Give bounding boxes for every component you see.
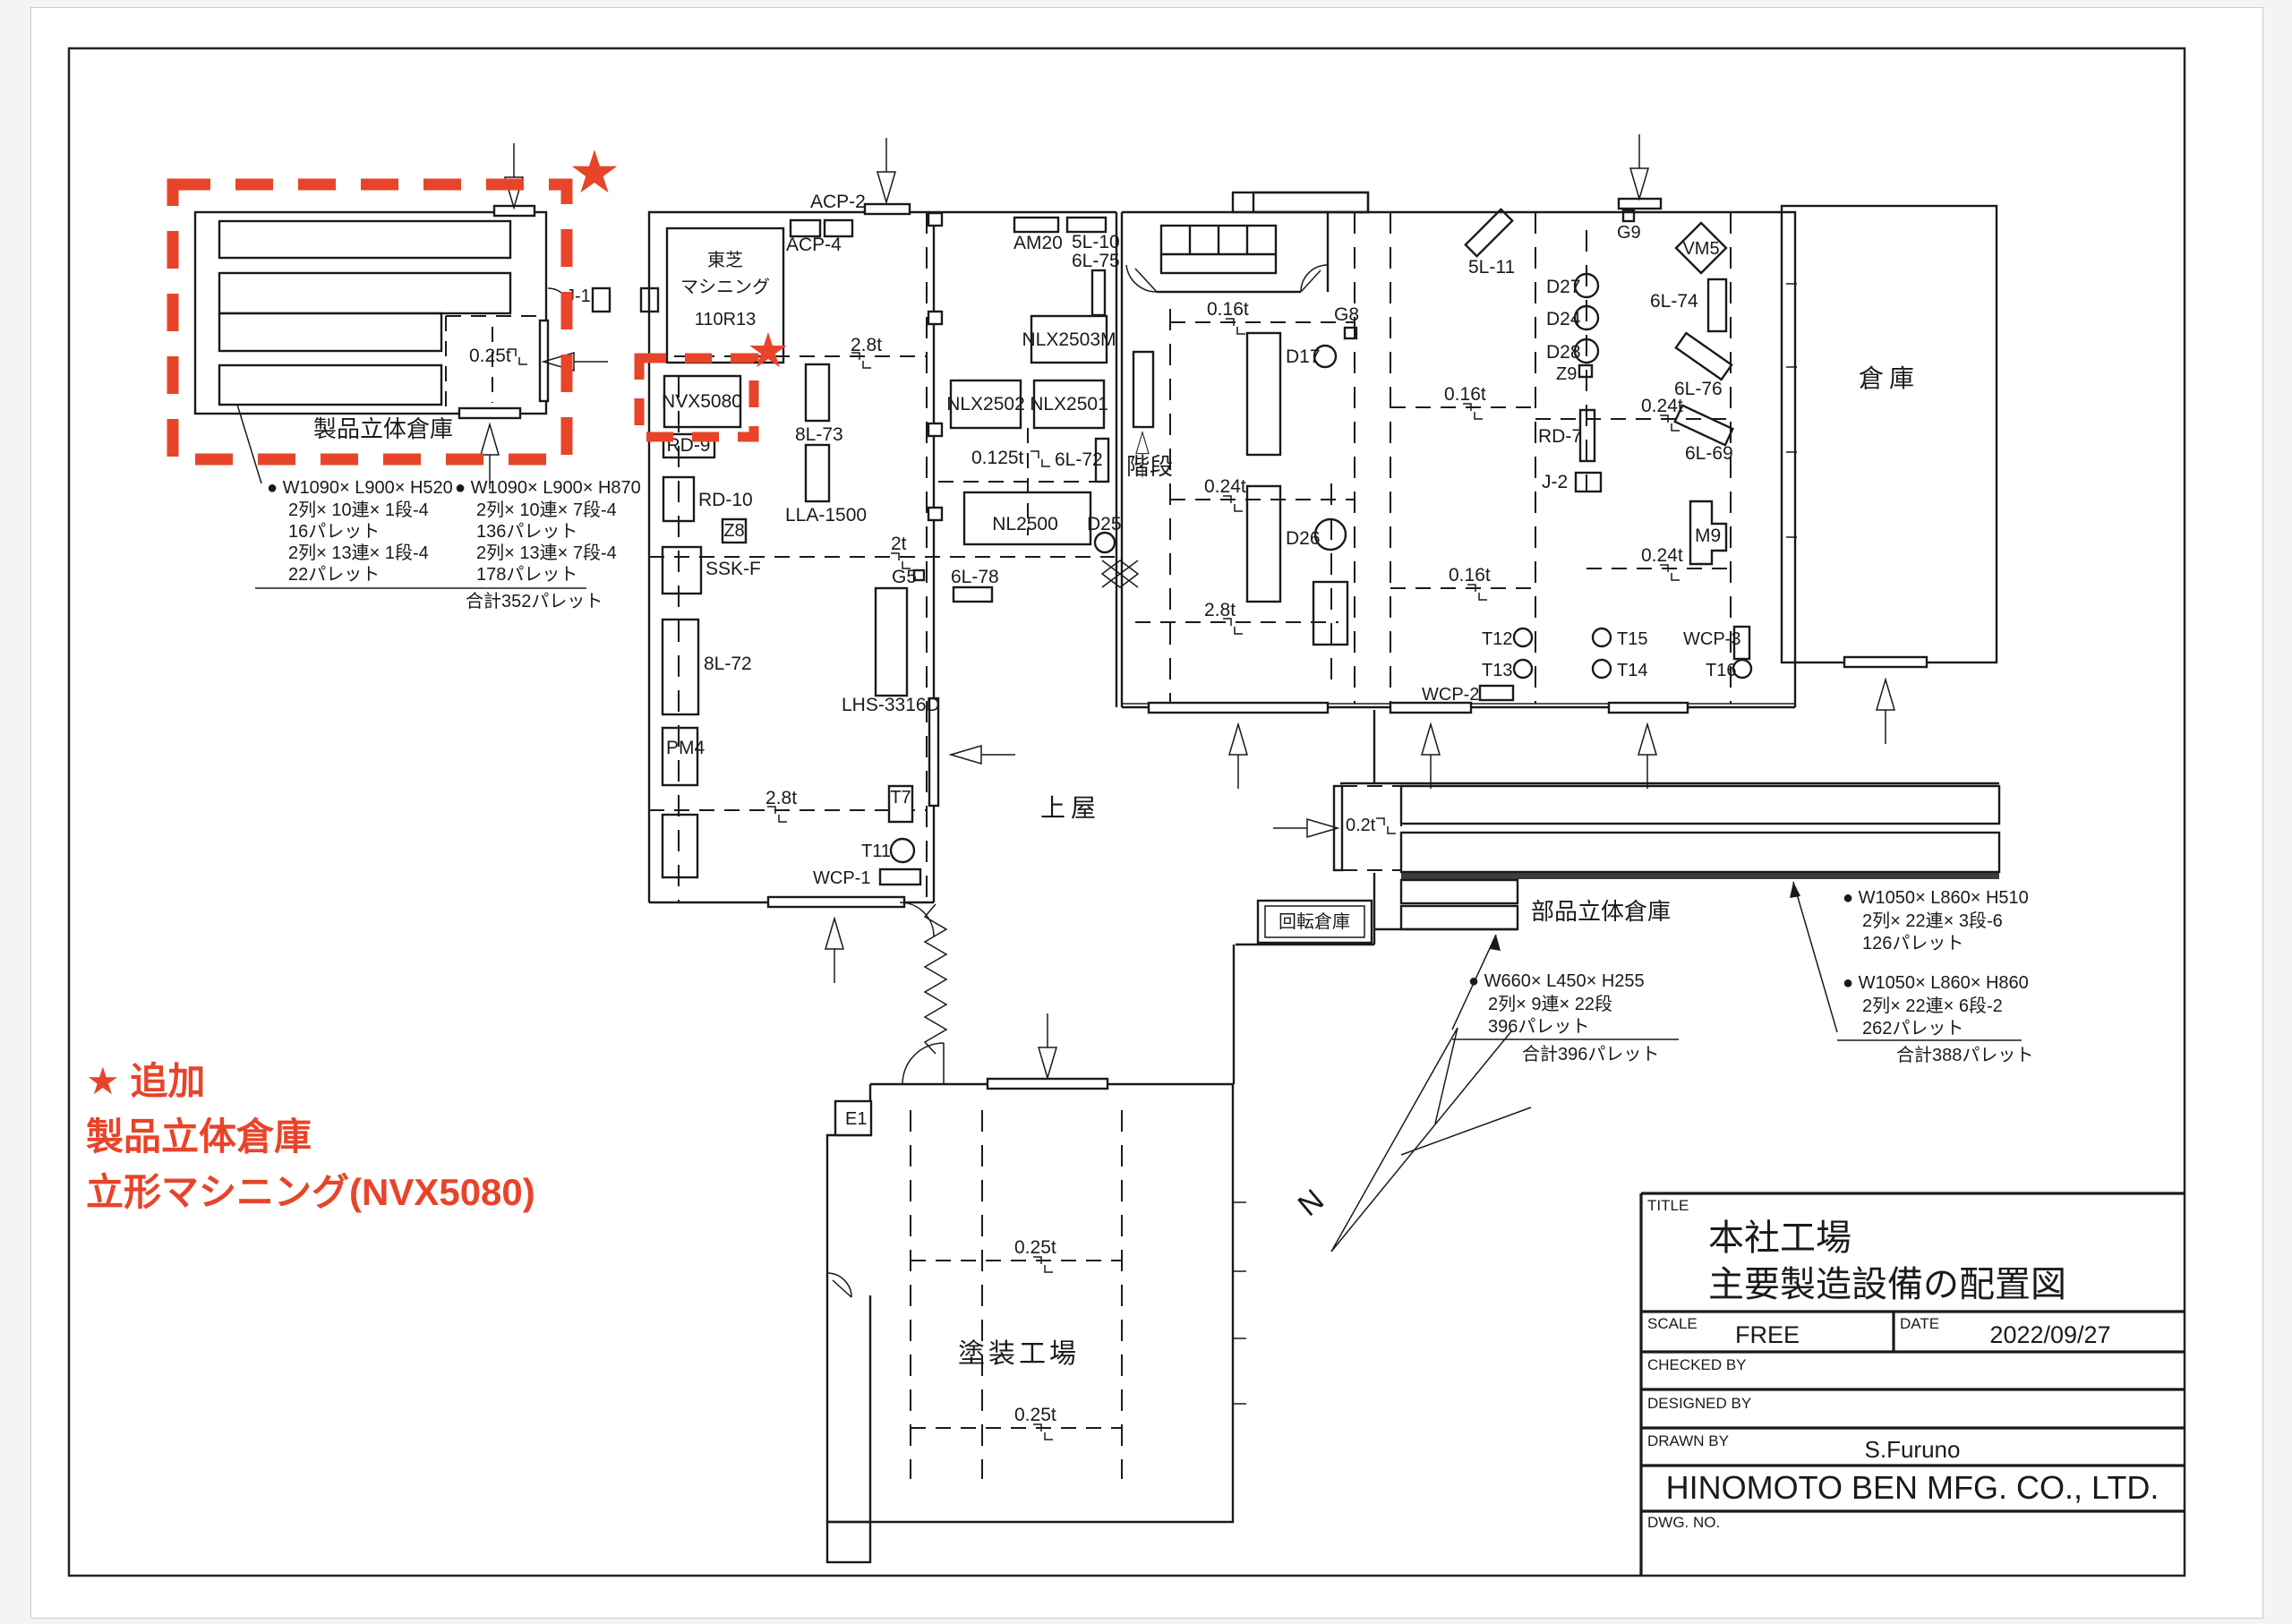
svg-text:2列× 22連× 3段-6: 2列× 22連× 3段-6 bbox=[1862, 910, 2003, 931]
south-door bbox=[768, 897, 904, 907]
svg-text:WCP-3: WCP-3 bbox=[1683, 629, 1740, 649]
svg-text:126パレット: 126パレット bbox=[1862, 934, 1963, 953]
canopy-label: 上屋 bbox=[1040, 794, 1101, 822]
svg-text:T11: T11 bbox=[861, 842, 891, 861]
red-note-line1: ★ 追加 bbox=[86, 1060, 205, 1102]
svg-text:22パレット: 22パレット bbox=[288, 565, 380, 585]
svg-text:J-2: J-2 bbox=[1542, 472, 1568, 492]
svg-text:VM5: VM5 bbox=[1682, 239, 1719, 259]
svg-text:16パレット: 16パレット bbox=[288, 522, 380, 542]
svg-text:0.16t: 0.16t bbox=[1207, 299, 1249, 320]
svg-text:Z8: Z8 bbox=[723, 521, 744, 541]
svg-text:LHS-3316D: LHS-3316D bbox=[842, 695, 940, 715]
svg-text:NVX5080: NVX5080 bbox=[662, 391, 742, 412]
svg-text:● W1090× L900× H520: ● W1090× L900× H520 bbox=[267, 478, 453, 498]
svg-text:136パレット: 136パレット bbox=[476, 522, 577, 542]
svg-text:5L-11: 5L-11 bbox=[1468, 257, 1515, 278]
svg-text:6L-75: 6L-75 bbox=[1072, 251, 1120, 271]
svg-text:8L-73: 8L-73 bbox=[795, 424, 843, 445]
svg-text:NL2500: NL2500 bbox=[992, 514, 1058, 534]
drawing-title-line1: 本社工場 bbox=[1708, 1218, 1852, 1258]
svg-text:0.24t: 0.24t bbox=[1641, 396, 1683, 416]
svg-text:マシニング: マシニング bbox=[680, 277, 770, 297]
svg-text:T13: T13 bbox=[1482, 661, 1512, 680]
svg-text:6L-74: 6L-74 bbox=[1650, 291, 1698, 312]
svg-text:6L-78: 6L-78 bbox=[951, 567, 999, 587]
warehouse-door bbox=[1844, 657, 1927, 667]
svg-text:AM20: AM20 bbox=[1013, 233, 1063, 253]
svg-text:5L-10: 5L-10 bbox=[1072, 232, 1120, 252]
date-value: 2022/09/27 bbox=[1989, 1321, 2110, 1348]
south-door-3 bbox=[1609, 703, 1688, 713]
svg-text:0.24t: 0.24t bbox=[1641, 545, 1683, 566]
svg-text:0.2t: 0.2t bbox=[1346, 816, 1376, 835]
svg-text:2t: 2t bbox=[891, 534, 907, 554]
acp2-door bbox=[865, 204, 910, 214]
svg-text:WCP-1: WCP-1 bbox=[813, 868, 870, 888]
svg-text:NLX2502: NLX2502 bbox=[946, 394, 1025, 415]
acp2-label: ACP-2 bbox=[810, 192, 866, 212]
rotary-warehouse-label: 回転倉庫 bbox=[1279, 911, 1350, 932]
factory-layout-drawing: 0.25t J-1 製品立体倉庫 ● W1090× L900× H520 2列×… bbox=[0, 0, 2292, 1624]
warehouse-label: 倉庫 bbox=[1859, 364, 1920, 392]
svg-text:M9: M9 bbox=[1695, 526, 1721, 546]
svg-text:2.8t: 2.8t bbox=[765, 788, 797, 808]
svg-text:● W660× L450× H255: ● W660× L450× H255 bbox=[1468, 971, 1645, 991]
drawing-title-line2: 主要製造設備の配置図 bbox=[1708, 1265, 2066, 1304]
svg-text:● W1090× L900× H870: ● W1090× L900× H870 bbox=[455, 478, 641, 498]
scale-label: SCALE bbox=[1647, 1315, 1698, 1332]
svg-text:2列× 13連× 1段-4: 2列× 13連× 1段-4 bbox=[288, 543, 429, 563]
paint-shop-label: 塗装工場 bbox=[958, 1339, 1080, 1369]
svg-text:T14: T14 bbox=[1617, 661, 1647, 680]
product-warehouse-label: 製品立体倉庫 bbox=[313, 415, 453, 442]
svg-text:6L-69: 6L-69 bbox=[1685, 443, 1733, 464]
star-icon: ★ bbox=[568, 139, 620, 205]
svg-text:0.25t: 0.25t bbox=[1014, 1237, 1056, 1258]
drawn-by-label: DRAWN BY bbox=[1647, 1432, 1729, 1449]
svg-text:G8: G8 bbox=[1334, 304, 1359, 325]
svg-text:396パレット: 396パレット bbox=[1488, 1017, 1589, 1037]
svg-text:2列× 10連× 1段-4: 2列× 10連× 1段-4 bbox=[288, 500, 429, 520]
svg-text:T7: T7 bbox=[890, 788, 911, 808]
rack-base bbox=[1401, 872, 1999, 879]
stairs-label: 階段 bbox=[1126, 453, 1173, 480]
svg-text:0.16t: 0.16t bbox=[1449, 565, 1491, 585]
svg-text:0.25t: 0.25t bbox=[1014, 1405, 1056, 1425]
red-note-line3: 立形マシニング(NVX5080) bbox=[86, 1171, 535, 1213]
date-label: DATE bbox=[1900, 1315, 1939, 1332]
drawn-by-value: S.Furuno bbox=[1865, 1436, 1961, 1463]
svg-text:東芝: 東芝 bbox=[707, 250, 743, 270]
svg-text:8L-72: 8L-72 bbox=[704, 654, 752, 674]
svg-text:0.16t: 0.16t bbox=[1444, 384, 1486, 405]
svg-text:RD-10: RD-10 bbox=[698, 490, 753, 510]
checked-by-label: CHECKED BY bbox=[1647, 1356, 1747, 1373]
svg-text:T16: T16 bbox=[1706, 661, 1736, 680]
svg-text:LLA-1500: LLA-1500 bbox=[785, 505, 867, 526]
svg-text:Z9: Z9 bbox=[1556, 364, 1577, 384]
svg-text:RD-7: RD-7 bbox=[1538, 426, 1582, 447]
svg-text:NLX2503M: NLX2503M bbox=[1022, 329, 1116, 350]
svg-text:T12: T12 bbox=[1482, 629, 1512, 649]
svg-text:0.125t: 0.125t bbox=[971, 448, 1024, 468]
svg-text:262パレット: 262パレット bbox=[1862, 1019, 1963, 1039]
acp4-label: ACP-4 bbox=[786, 235, 842, 255]
svg-text:2列× 22連× 6段-2: 2列× 22連× 6段-2 bbox=[1862, 996, 2003, 1016]
drawing-frame bbox=[69, 48, 2185, 1576]
svg-text:E1: E1 bbox=[845, 1109, 867, 1129]
designed-by-label: DESIGNED BY bbox=[1647, 1395, 1751, 1412]
svg-text:178パレット: 178パレット bbox=[476, 565, 577, 585]
svg-text:G9: G9 bbox=[1617, 223, 1641, 243]
north-door bbox=[1619, 199, 1661, 209]
svg-text:2列× 13連× 7段-4: 2列× 13連× 7段-4 bbox=[476, 543, 617, 563]
svg-text:NLX2501: NLX2501 bbox=[1030, 394, 1108, 415]
parts-warehouse-label: 部品立体倉庫 bbox=[1531, 898, 1671, 925]
svg-text:合計396パレット: 合計396パレット bbox=[1522, 1044, 1659, 1064]
svg-text:T15: T15 bbox=[1617, 629, 1647, 649]
floor-plan-svg: 0.25t J-1 製品立体倉庫 ● W1090× L900× H520 2列×… bbox=[0, 0, 2292, 1624]
svg-text:SSK-F: SSK-F bbox=[706, 559, 761, 579]
company-name: HINOMOTO BEN MFG. CO., LTD. bbox=[1666, 1469, 2159, 1506]
dwg-no-label: DWG. NO. bbox=[1647, 1514, 1720, 1531]
south-door-1 bbox=[1149, 703, 1328, 713]
svg-text:● W1050× L860× H510: ● W1050× L860× H510 bbox=[1843, 888, 2029, 908]
svg-text:2列× 9連× 22段: 2列× 9連× 22段 bbox=[1488, 994, 1612, 1014]
svg-text:合計388パレット: 合計388パレット bbox=[1896, 1045, 2033, 1065]
svg-text:0.24t: 0.24t bbox=[1204, 476, 1246, 497]
bottom-door bbox=[459, 408, 520, 418]
svg-text:WCP-2: WCP-2 bbox=[1422, 685, 1479, 705]
svg-text:合計352パレット: 合計352パレット bbox=[466, 591, 603, 611]
star-icon: ★ bbox=[747, 324, 790, 378]
svg-text:PM4: PM4 bbox=[666, 738, 706, 758]
crane-label: 0.25t bbox=[469, 346, 511, 366]
svg-text:2.8t: 2.8t bbox=[1204, 600, 1236, 620]
red-note-line2: 製品立体倉庫 bbox=[86, 1115, 312, 1158]
title-label: TITLE bbox=[1647, 1197, 1689, 1214]
scale-value: FREE bbox=[1735, 1321, 1800, 1348]
svg-text:2列× 10連× 7段-4: 2列× 10連× 7段-4 bbox=[476, 500, 617, 520]
svg-text:● W1050× L860× H860: ● W1050× L860× H860 bbox=[1843, 973, 2029, 993]
